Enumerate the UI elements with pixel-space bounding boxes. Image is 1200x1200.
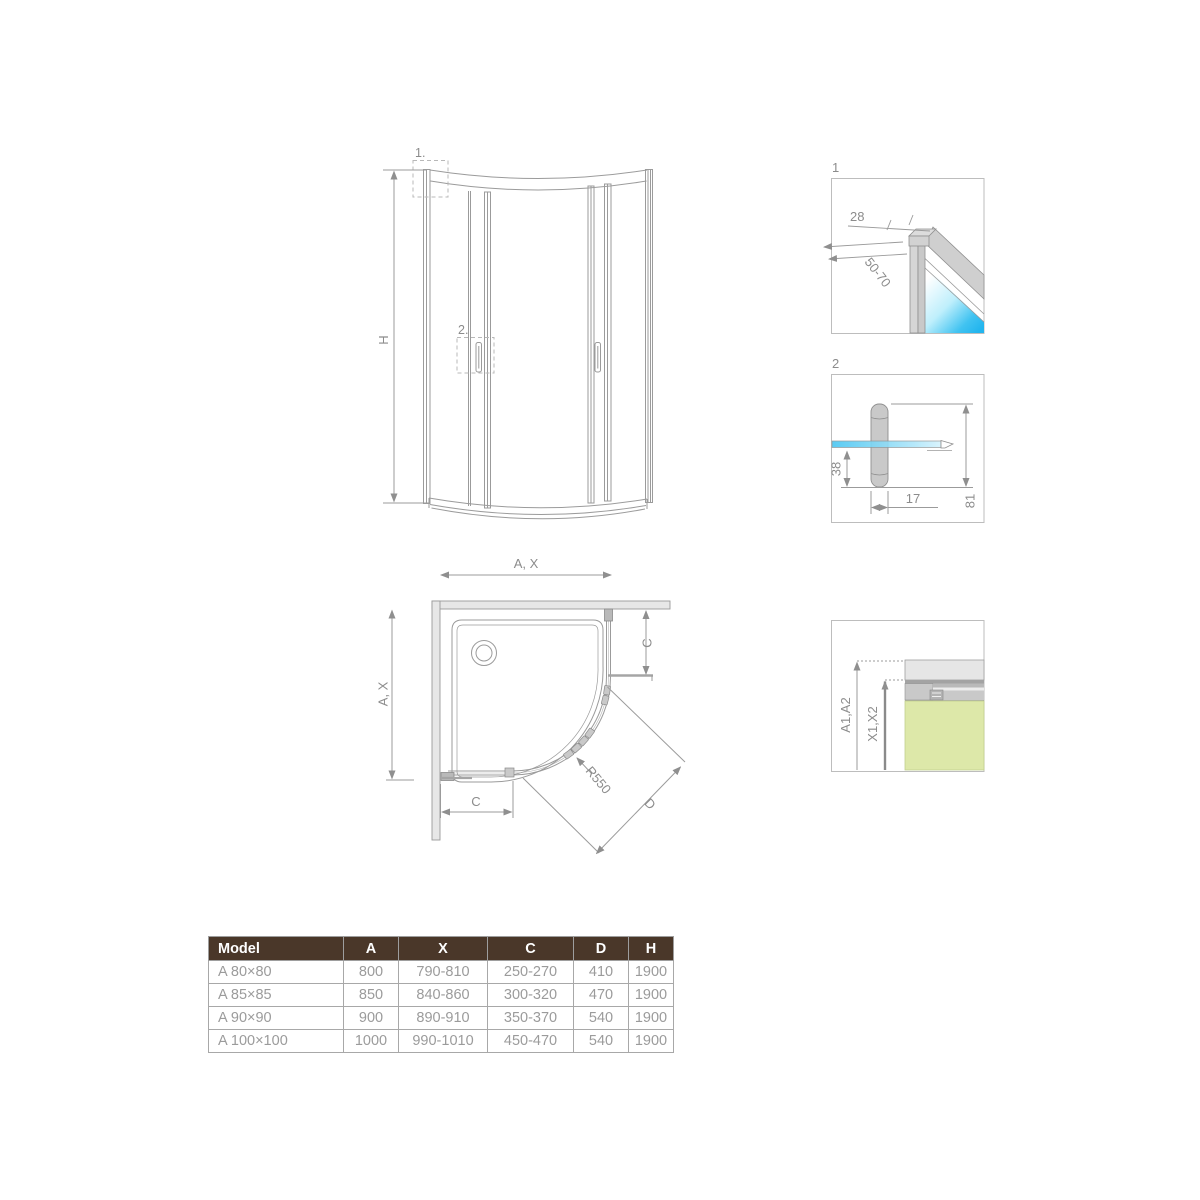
dim-height-label: H <box>376 335 391 344</box>
cell-c: 300-320 <box>488 984 574 1007</box>
shower-tray <box>452 620 603 782</box>
top-rail <box>430 170 647 179</box>
wall-section <box>905 660 984 680</box>
table-row: A 90×90 900 890-910 350-370 540 1900 <box>209 1007 674 1030</box>
detail-2-label: 2 <box>832 356 839 371</box>
detail-1-marker-label: 1. <box>415 146 425 160</box>
glass-pane <box>832 441 941 448</box>
wall-top <box>432 601 670 609</box>
cell-d: 540 <box>574 1007 629 1030</box>
dim-width-label: A, X <box>514 556 539 571</box>
cell-model: A 85×85 <box>209 984 344 1007</box>
table-header-row: Model A X C D H <box>209 937 674 961</box>
technical-drawing-page: 1. 2. H A, X <box>0 0 1200 1200</box>
dim-28-label: 28 <box>850 209 864 224</box>
table-row: A 80×80 800 790-810 250-270 410 1900 <box>209 961 674 984</box>
elevation-figure: 1. 2. H A, X <box>380 140 680 590</box>
dim-38-label: 38 <box>829 462 844 476</box>
cell-d: 470 <box>574 984 629 1007</box>
cell-a: 800 <box>344 961 399 984</box>
dim-81-label: 81 <box>963 494 978 508</box>
detail-3-figure: A1,A2 X1,X2 <box>825 612 1000 780</box>
cell-x: 990-1010 <box>399 1030 488 1053</box>
wall-profile-outer <box>910 239 918 333</box>
wall-left <box>432 601 440 840</box>
column-header-d: D <box>574 937 629 961</box>
cell-h: 1900 <box>629 961 674 984</box>
cell-x: 840-860 <box>399 984 488 1007</box>
glass-doors-arc <box>441 609 613 781</box>
plan-figure: A, X C C R550 D <box>380 590 700 870</box>
dim-a1-a2-label: A1,A2 <box>838 697 853 732</box>
cell-a: 900 <box>344 1007 399 1030</box>
detail-2-figure: 2 38 17 81 <box>825 352 1000 537</box>
drain-circle <box>472 641 497 666</box>
detail-1-figure: 1 28 50-70 <box>825 160 1000 340</box>
right-wall-profile <box>646 170 653 503</box>
column-header-c: C <box>488 937 574 961</box>
plan-walls <box>432 601 670 840</box>
dim-c-bottom-label: C <box>471 794 480 809</box>
dim-d-label: D <box>642 795 659 812</box>
door-rollers <box>563 685 610 759</box>
cell-a: 1000 <box>344 1030 399 1053</box>
dimension-table: Model A X C D H A 80×80 800 790-810 250-… <box>208 936 674 1053</box>
cell-h: 1900 <box>629 1007 674 1030</box>
column-header-model: Model <box>209 937 344 961</box>
cell-h: 1900 <box>629 1030 674 1053</box>
column-header-x: X <box>399 937 488 961</box>
elevation-drawing <box>424 170 653 519</box>
cell-x: 790-810 <box>399 961 488 984</box>
adjust-bracket <box>930 690 943 700</box>
dim-ax-left-label: A, X <box>376 681 391 706</box>
table-row: A 85×85 850 840-860 300-320 470 1900 <box>209 984 674 1007</box>
cell-a: 850 <box>344 984 399 1007</box>
column-header-a: A <box>344 937 399 961</box>
cell-d: 410 <box>574 961 629 984</box>
radius-label: R550 <box>583 763 614 796</box>
detail-1-label: 1 <box>832 160 839 175</box>
cell-c: 350-370 <box>488 1007 574 1030</box>
cell-model: A 80×80 <box>209 961 344 984</box>
dim-c-right-label: C <box>640 638 655 647</box>
cell-x: 890-910 <box>399 1007 488 1030</box>
table-row: A 100×100 1000 990-1010 450-470 540 1900 <box>209 1030 674 1053</box>
cell-h: 1900 <box>629 984 674 1007</box>
bottom-mount-bracket <box>441 773 454 781</box>
cell-model: A 100×100 <box>209 1030 344 1053</box>
detail-markers <box>413 161 494 374</box>
glass-section <box>905 701 984 770</box>
column-header-h: H <box>629 937 674 961</box>
detail-2-marker-label: 2. <box>458 323 468 337</box>
top-mount-bracket <box>605 609 613 621</box>
profile-section <box>905 684 933 701</box>
cell-d: 540 <box>574 1030 629 1053</box>
cell-c: 250-270 <box>488 961 574 984</box>
bottom-rail <box>429 498 647 508</box>
detail-3-drawing <box>905 660 984 770</box>
dim-x1-x2-label: X1,X2 <box>865 706 880 741</box>
cell-model: A 90×90 <box>209 1007 344 1030</box>
cell-c: 450-470 <box>488 1030 574 1053</box>
dim-17-label: 17 <box>906 491 920 506</box>
wall-profile-inner <box>918 239 925 333</box>
